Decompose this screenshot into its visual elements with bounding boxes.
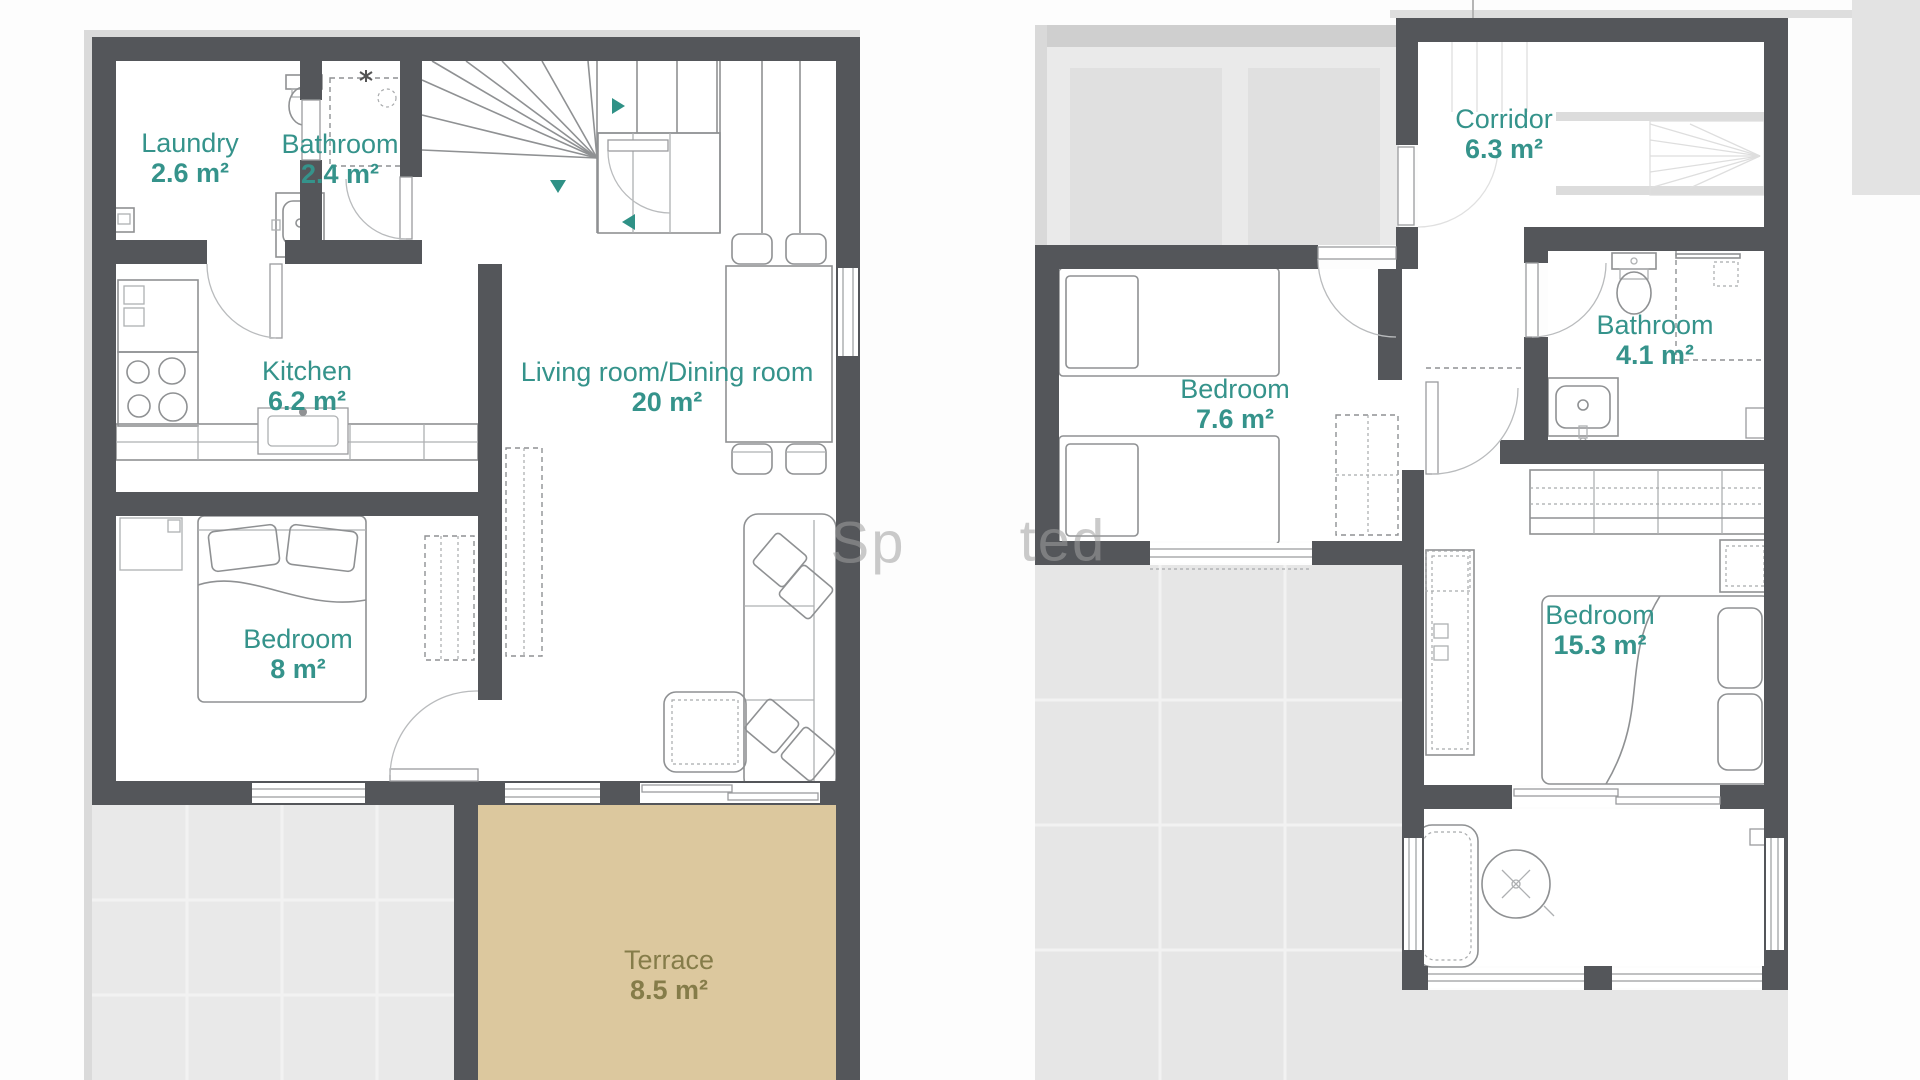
watermark-fragment: Sp	[831, 510, 906, 577]
room-label-bathroom-ground: Bathroom 2.4 m²	[281, 129, 398, 189]
room-area: 4.1 m²	[1596, 340, 1713, 370]
floor-plan-image: Sp ted Laundry 2.6 m² Bathroom 2.4 m² Ki…	[0, 0, 1920, 1080]
watermark-fragment: ted	[1020, 508, 1107, 575]
room-label-terrace: Terrace 8.5 m²	[624, 945, 714, 1005]
room-area: 6.2 m²	[262, 386, 352, 416]
room-area: 8 m²	[243, 654, 353, 684]
room-name: Kitchen	[262, 356, 352, 386]
ground-gray-zone	[92, 805, 454, 1080]
room-label-bedroom-153: Bedroom 15.3 m²	[1545, 600, 1655, 660]
room-label-laundry: Laundry 2.6 m²	[141, 128, 239, 188]
room-label-bathroom-upper: Bathroom 4.1 m²	[1596, 310, 1713, 370]
room-name: Bathroom	[281, 129, 398, 159]
room-area: 8.5 m²	[624, 975, 714, 1005]
room-name: Corridor	[1455, 104, 1553, 134]
room-area: 7.6 m²	[1180, 404, 1290, 434]
terrace-floor	[478, 805, 836, 1080]
room-name: Bathroom	[1596, 310, 1713, 340]
room-label-kitchen: Kitchen 6.2 m²	[262, 356, 352, 416]
room-name: Bedroom	[1180, 374, 1290, 404]
room-area: 20 m²	[521, 387, 814, 417]
room-label-corridor: Corridor 6.3 m²	[1455, 104, 1553, 164]
room-name: Laundry	[141, 128, 239, 158]
room-area: 2.4 m²	[281, 159, 398, 189]
room-area: 2.6 m²	[141, 158, 239, 188]
room-label-living-dining: Living room/Dining room 20 m²	[521, 357, 814, 417]
room-name: Bedroom	[243, 624, 353, 654]
room-name: Bedroom	[1545, 600, 1655, 630]
ghost-neighbour-rooms	[1035, 25, 1399, 245]
room-label-bedroom-ground: Bedroom 8 m²	[243, 624, 353, 684]
room-name: Terrace	[624, 945, 714, 975]
room-name: Living room/Dining room	[521, 357, 814, 387]
room-area: 6.3 m²	[1455, 134, 1553, 164]
room-area: 15.3 m²	[1545, 630, 1655, 660]
room-label-bedroom-76: Bedroom 7.6 m²	[1180, 374, 1290, 434]
